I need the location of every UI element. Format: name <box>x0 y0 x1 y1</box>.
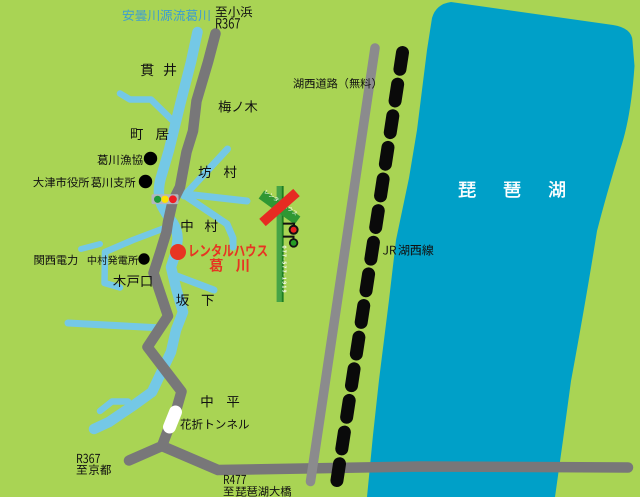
svg-text:中村発電所: 中村発電所 <box>87 252 138 267</box>
svg-text:梅ノ木: 梅ノ木 <box>218 97 258 116</box>
svg-text:至 琵琶湖大橋: 至 琵琶湖大橋 <box>223 484 292 497</box>
svg-text:坂下: 坂下 <box>176 289 227 309</box>
svg-text:安曇川源流葛川: 安曇川源流葛川 <box>122 5 211 24</box>
svg-text:花折トンネル: 花折トンネル <box>180 417 250 433</box>
svg-text:JR 湖西線: JR 湖西線 <box>383 242 434 259</box>
svg-text:町居: 町居 <box>130 123 181 143</box>
svg-text:貫井: 貫井 <box>140 60 186 80</box>
svg-text:至 京都: 至 京都 <box>76 462 112 478</box>
svg-text:大津市役所 葛川支所: 大津市役所 葛川支所 <box>33 175 137 191</box>
svg-text:葛川: 葛川 <box>209 255 262 276</box>
svg-text:琵琶湖: 琵琶湖 <box>458 176 593 202</box>
svg-text:湖西道路（無料）: 湖西道路（無料） <box>293 76 383 92</box>
svg-text:中村: 中村 <box>180 215 229 235</box>
svg-text:077-577-1919: 077-577-1919 <box>280 246 287 294</box>
svg-text:中平: 中平 <box>200 391 253 411</box>
svg-text:葛川漁協: 葛川漁協 <box>97 152 143 168</box>
svg-text:関西電力: 関西電力 <box>34 252 79 268</box>
svg-text:木戸口: 木戸口 <box>113 270 154 290</box>
svg-text:坊村: 坊村 <box>198 161 249 181</box>
svg-text:R367: R367 <box>215 14 241 34</box>
